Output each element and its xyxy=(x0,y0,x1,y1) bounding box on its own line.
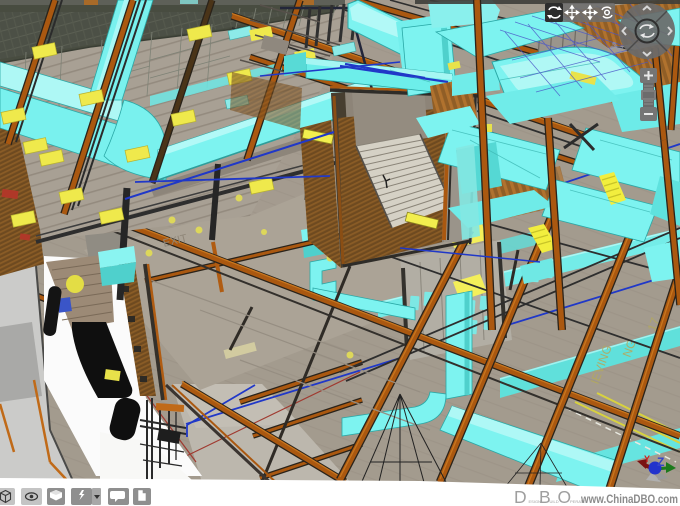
svg-text:D: D xyxy=(514,487,527,506)
svg-text:Z: Z xyxy=(657,455,664,469)
svg-text:www.ChinaDBO.com: www.ChinaDBO.com xyxy=(580,492,678,506)
svg-text:Y: Y xyxy=(644,454,650,464)
